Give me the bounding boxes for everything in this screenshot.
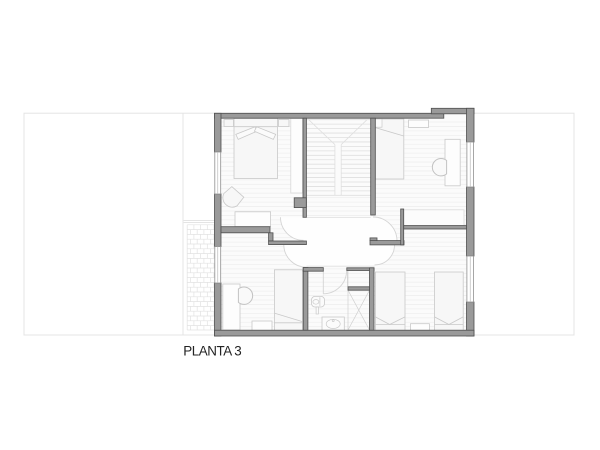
svg-text:PLANTA 3: PLANTA 3 (183, 343, 241, 358)
